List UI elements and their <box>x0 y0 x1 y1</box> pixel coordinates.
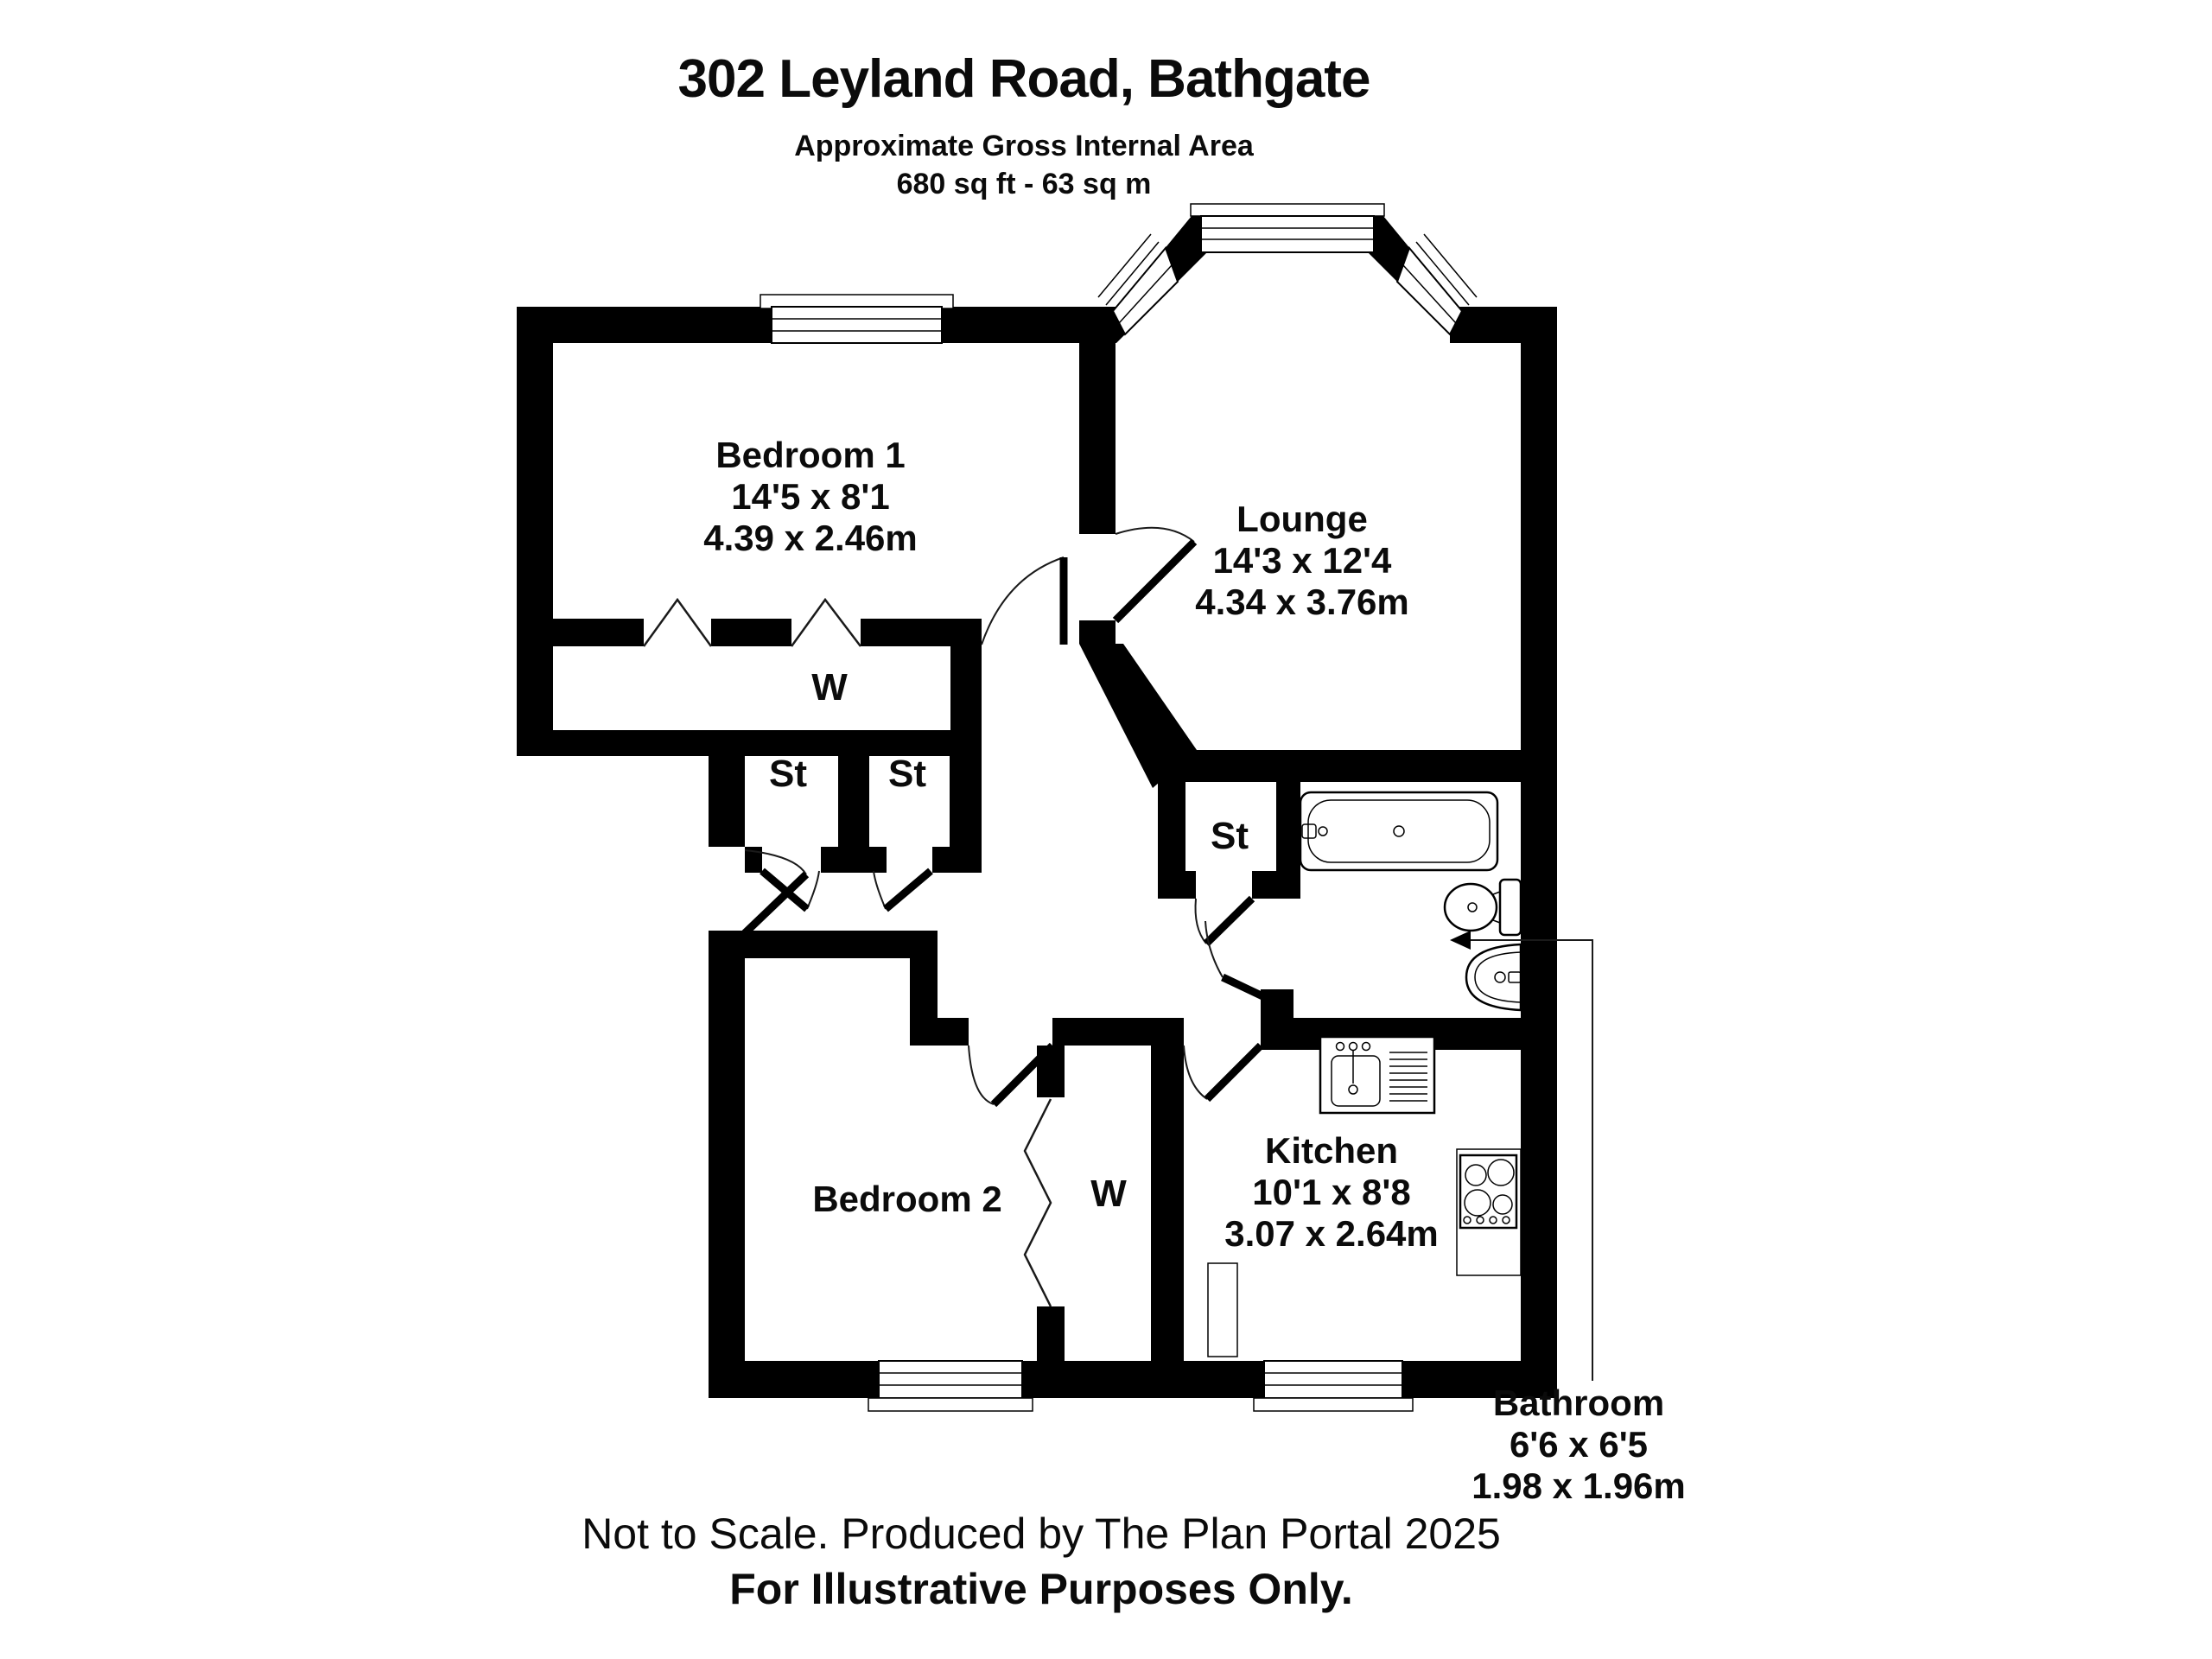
wardrobe-label: W <box>811 666 848 709</box>
room-name: Bedroom 1 <box>715 435 905 475</box>
door-swing-arc <box>807 871 819 909</box>
window-sill <box>1191 204 1384 216</box>
window-pane <box>772 307 942 343</box>
wall-segment <box>861 619 950 646</box>
wall-segment <box>745 931 938 958</box>
room-label-bedroom1: Bedroom 1 14'5 x 8'1 4.39 x 2.46m <box>703 435 918 558</box>
bifold-chevron <box>644 600 711 646</box>
wall-segment <box>709 756 745 847</box>
wall-segment <box>517 307 553 756</box>
room-name: Lounge <box>1236 499 1368 539</box>
toilet-cistern <box>1500 880 1521 935</box>
toilet-bowl <box>1445 884 1497 931</box>
bay-window-right-pane <box>1397 248 1462 334</box>
window-bedroom2 <box>868 1361 1033 1411</box>
wall-segment <box>821 847 838 873</box>
room-dims-metric: 3.07 x 2.64m <box>1224 1213 1439 1254</box>
wardrobe-label: W <box>1090 1173 1127 1215</box>
window-bedroom1 <box>760 295 953 343</box>
room-label-kitchen: Kitchen 10'1 x 8'8 3.07 x 2.64m <box>1224 1130 1439 1254</box>
storage-label: St <box>769 753 807 795</box>
page-area: 680 sq ft - 63 sq m <box>897 168 1152 200</box>
room-dims-imperial: 10'1 x 8'8 <box>1252 1172 1410 1212</box>
door-storage2 <box>874 871 931 909</box>
wall-segment <box>1252 871 1276 899</box>
door-swing-arc <box>874 871 886 909</box>
wall-segment <box>1151 750 1557 782</box>
door-leaf <box>1207 1046 1261 1099</box>
window-sill <box>1254 1398 1413 1411</box>
room-dims-metric: 4.34 x 3.76m <box>1195 582 1409 622</box>
window-pane <box>1264 1361 1402 1398</box>
room-dims-metric: 1.98 x 1.96m <box>1471 1465 1686 1506</box>
wall-segment <box>869 847 887 873</box>
bay-window-left-pane <box>1113 248 1178 334</box>
door-leaf <box>1206 899 1252 944</box>
footer: Not to Scale. Produced by The Plan Porta… <box>582 1510 1501 1613</box>
door-kitchen <box>1184 1046 1261 1099</box>
window-pane <box>1201 216 1374 252</box>
storage-label: St <box>1211 815 1249 857</box>
door-bedroom1 <box>982 557 1064 645</box>
kitchen-sink-icon <box>1320 1037 1434 1113</box>
room-dims-metric: 4.39 x 2.46m <box>703 518 918 558</box>
wall-segment <box>553 619 644 646</box>
leader-arrow-icon <box>1450 931 1471 950</box>
wall-segment <box>1158 871 1196 899</box>
room-dims-imperial: 6'6 x 6'5 <box>1510 1424 1648 1465</box>
footer-purpose: For Illustrative Purposes Only. <box>729 1565 1352 1613</box>
door-leaf <box>886 871 931 909</box>
page-title: 302 Leyland Road, Bathgate <box>678 49 1370 109</box>
footer-disclaimer: Not to Scale. Produced by The Plan Porta… <box>582 1510 1501 1558</box>
door-swing-arc <box>969 1046 994 1104</box>
floor-plan: 302 Leyland Road, Bathgate Approximate G… <box>0 0 2212 1659</box>
wall-segment <box>709 931 745 1361</box>
room-label-bedroom2: Bedroom 2 <box>812 1179 1001 1219</box>
room-dims-imperial: 14'3 x 12'4 <box>1213 540 1392 581</box>
floorplan-page: 302 Leyland Road, Bathgate Approximate G… <box>0 0 2212 1659</box>
door-leaf <box>1223 977 1272 1001</box>
door-swing-arc <box>982 557 1064 645</box>
door-swing-arc <box>1184 1046 1207 1099</box>
bath-icon <box>1300 792 1497 870</box>
room-name: Bathroom <box>1493 1382 1664 1423</box>
header: 302 Leyland Road, Bathgate Approximate G… <box>678 49 1370 200</box>
storage-label: St <box>888 753 926 795</box>
wall-segment <box>1151 1046 1184 1361</box>
basin-icon <box>1466 944 1521 1010</box>
door-swing-arc <box>1116 528 1194 542</box>
room-label-lounge: Lounge 14'3 x 12'4 4.34 x 3.76m <box>1195 499 1409 622</box>
wall-segment <box>910 1018 969 1046</box>
room-dims-imperial: 14'5 x 8'1 <box>731 476 889 517</box>
window-kitchen <box>1254 1361 1413 1411</box>
room-label-bathroom: Bathroom 6'6 x 6'5 1.98 x 1.96m <box>1471 1382 1686 1506</box>
wall-segment <box>838 756 869 873</box>
counter-icon <box>1208 1263 1237 1357</box>
room-name: Bedroom 2 <box>812 1179 1001 1219</box>
toilet-icon <box>1445 880 1521 935</box>
page-subtitle: Approximate Gross Internal Area <box>794 130 1255 162</box>
wall-segment <box>950 756 982 873</box>
wall-segment <box>932 847 950 873</box>
door-storage3 <box>1196 899 1253 944</box>
wall-segment <box>1276 782 1300 899</box>
door-lounge <box>1116 528 1194 620</box>
wall-segment <box>950 619 982 756</box>
bay-window <box>1098 204 1477 334</box>
hob-icon <box>1457 1149 1521 1275</box>
wall-segment <box>1052 1018 1184 1046</box>
wall-segment <box>711 619 791 646</box>
wall-segment <box>1521 343 1557 1398</box>
window-sill <box>868 1398 1033 1411</box>
wall-segment <box>709 1361 1557 1398</box>
room-name: Kitchen <box>1265 1130 1398 1171</box>
bifold-chevron <box>1025 1099 1051 1306</box>
door-leaf <box>1116 542 1194 620</box>
wall-segment <box>1037 1306 1065 1361</box>
wall-segment <box>1079 620 1116 644</box>
window-pane <box>879 1361 1022 1398</box>
bath-outer <box>1300 792 1497 870</box>
bifold-chevron <box>791 600 861 646</box>
door-swing-arc <box>1196 899 1207 944</box>
